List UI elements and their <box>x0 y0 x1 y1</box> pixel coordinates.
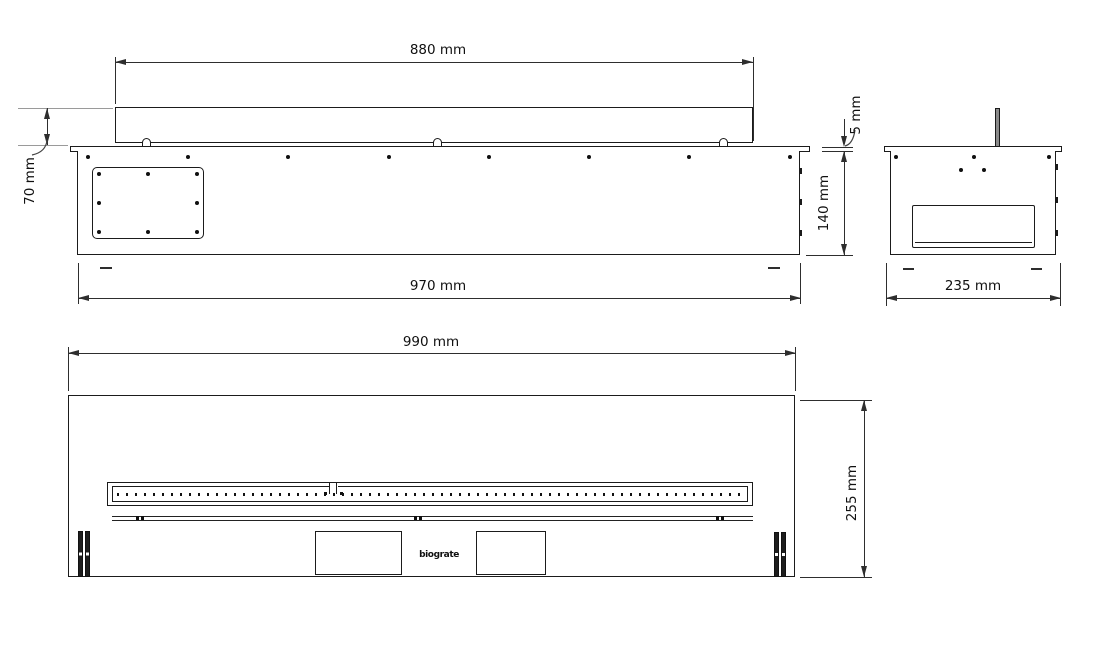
reference-dash <box>1031 268 1042 270</box>
rail-tick <box>414 516 417 520</box>
extension-line <box>800 577 872 578</box>
dimension-line <box>115 62 753 63</box>
dimension-line <box>864 400 865 577</box>
panel-screw <box>97 172 101 176</box>
rail-tick <box>419 516 422 520</box>
access-panel <box>92 167 204 239</box>
dim-label: 5 mm <box>849 80 863 150</box>
dim-label: 880 mm <box>388 43 488 57</box>
bottom-opening <box>476 531 546 575</box>
front-burner-top-box <box>115 107 753 143</box>
screw-dot <box>587 155 591 159</box>
extension-line <box>18 108 113 109</box>
screw-dot <box>687 155 691 159</box>
recess-inner-line <box>915 242 1032 243</box>
edge-tick <box>1055 164 1058 170</box>
arrowhead-left <box>886 295 897 301</box>
slot-joint-dot <box>340 492 343 495</box>
arrowhead-left <box>115 59 126 65</box>
arrowhead-right <box>1050 295 1061 301</box>
screw-dot <box>286 155 290 159</box>
vent-slot <box>781 532 786 577</box>
rail-tick <box>716 516 719 520</box>
dim-label: 140 mm <box>817 168 831 238</box>
arrowhead-right <box>785 350 796 356</box>
panel-screw <box>97 201 101 205</box>
dim-label: 70 mm <box>23 146 37 216</box>
vent-slot <box>85 531 90 577</box>
slot-joint-line <box>336 483 337 494</box>
technical-drawing-canvas: biograte 880 mm 70 mm 970 mm <box>0 0 1096 668</box>
vent-slot <box>774 532 779 577</box>
bottom-opening <box>315 531 402 575</box>
panel-screw <box>97 230 101 234</box>
panel-screw <box>146 172 150 176</box>
screw-dot <box>894 155 898 159</box>
slot-joint-dot <box>324 492 327 495</box>
screw-dot <box>186 155 190 159</box>
arrowhead-right <box>742 59 753 65</box>
arrowhead-down <box>841 244 847 255</box>
screw-dot <box>959 168 963 172</box>
reference-dash <box>903 268 914 270</box>
latch-hook <box>433 138 442 146</box>
dimension-line <box>886 298 1061 299</box>
reference-dash <box>768 267 780 269</box>
screw-dot <box>487 155 491 159</box>
rail-tick <box>141 516 144 520</box>
extension-line <box>753 57 754 141</box>
arrowhead-up <box>861 400 867 411</box>
dimension-line <box>68 353 796 354</box>
burner-hole-row <box>117 493 743 496</box>
arrowhead-right <box>790 295 801 301</box>
arrowhead-up <box>841 151 847 162</box>
screw-dot <box>387 155 391 159</box>
dimension-line <box>78 298 801 299</box>
dim-label: 235 mm <box>903 279 1043 293</box>
ignition-rod <box>995 108 1000 147</box>
screw-dot <box>972 155 976 159</box>
slide-rail <box>112 516 753 521</box>
slot-joint-line <box>329 483 330 494</box>
arrowhead-down <box>861 566 867 577</box>
latch-hook <box>719 138 728 146</box>
arrowhead-up <box>44 108 50 119</box>
dimension-line <box>844 151 845 255</box>
edge-tick <box>1055 197 1058 203</box>
dim-label: 970 mm <box>368 279 508 293</box>
edge-tick <box>799 168 802 174</box>
edge-tick <box>1055 230 1058 236</box>
panel-screw <box>195 201 199 205</box>
arrowhead-left <box>68 350 79 356</box>
screw-dot <box>982 168 986 172</box>
vent-slot <box>78 531 83 577</box>
edge-tick <box>799 199 802 205</box>
rail-tick <box>136 516 139 520</box>
screw-dot <box>1047 155 1051 159</box>
extension-line <box>806 255 853 256</box>
screw-dot <box>86 155 90 159</box>
panel-screw <box>195 230 199 234</box>
dim-label: 255 mm <box>845 458 859 528</box>
panel-screw <box>146 230 150 234</box>
dim-label: 990 mm <box>361 335 501 349</box>
extension-line <box>822 151 853 152</box>
latch-hook <box>142 138 151 146</box>
edge-tick <box>799 230 802 236</box>
screw-dot <box>788 155 792 159</box>
rail-tick <box>721 516 724 520</box>
panel-screw <box>195 172 199 176</box>
brand-logo: biograte <box>409 550 469 560</box>
reference-dash <box>100 267 112 269</box>
arrowhead-left <box>78 295 89 301</box>
